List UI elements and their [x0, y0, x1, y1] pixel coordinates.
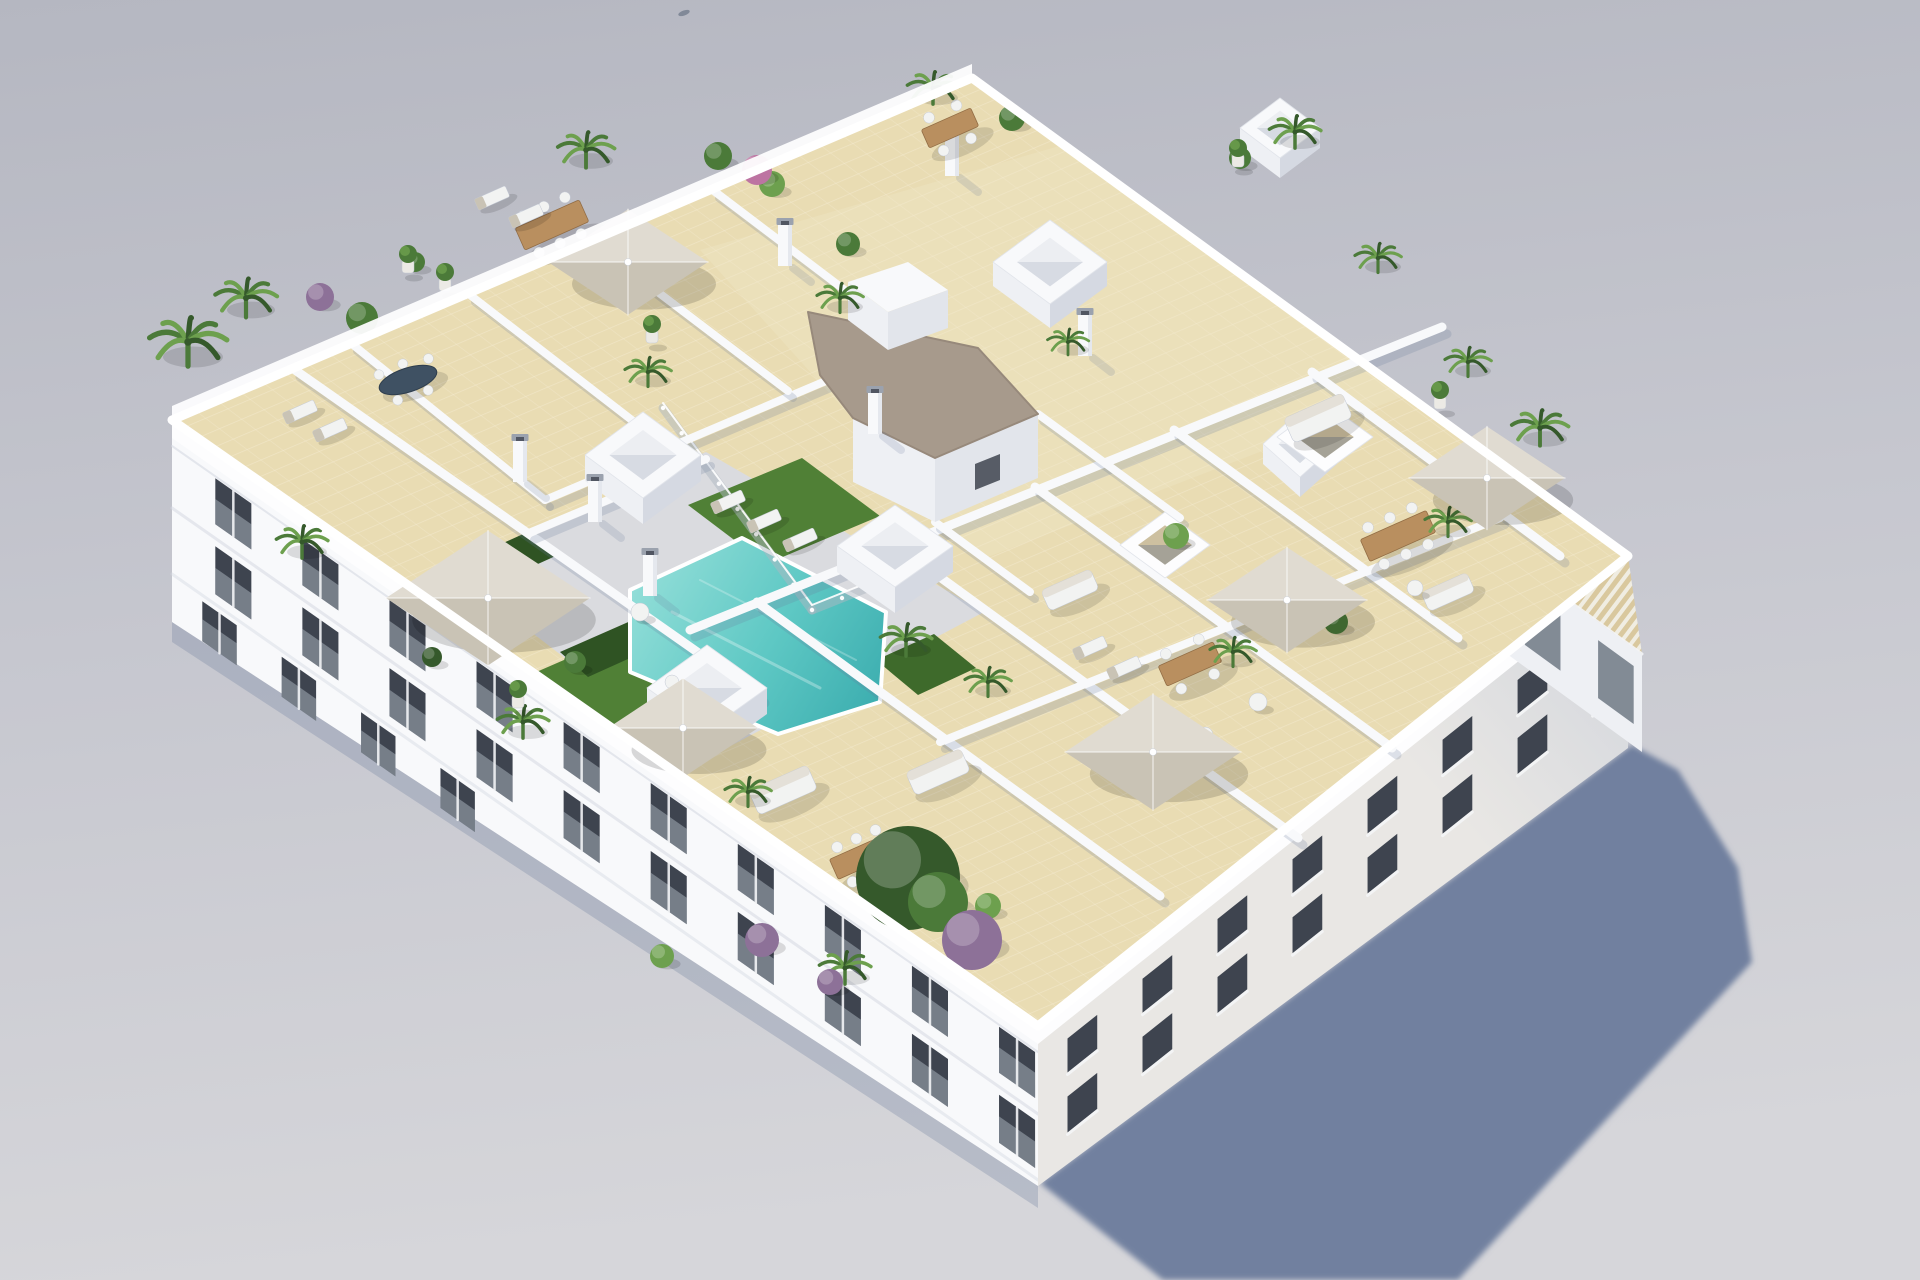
palm-crown	[838, 296, 843, 301]
fence-post	[840, 596, 844, 600]
chimney-vent	[1081, 311, 1089, 315]
fence-post	[679, 431, 683, 435]
chimney-vent	[871, 389, 879, 393]
parasol-pole	[1150, 749, 1157, 756]
fence-post	[773, 557, 777, 561]
pot-foliage-highlight	[510, 681, 520, 691]
chimney-shaft-shade	[523, 438, 527, 482]
palm-crown	[521, 720, 526, 725]
parasol-pole	[1484, 475, 1491, 482]
parasol-pole	[625, 259, 632, 266]
palm-crown	[1537, 425, 1543, 431]
chimney-shaft-shade	[598, 478, 602, 522]
chimney-shaft-shade	[788, 222, 792, 266]
palm-crown	[1293, 130, 1298, 135]
palm-crown	[646, 370, 651, 375]
palm-crown	[243, 295, 249, 301]
bush-highlight	[947, 913, 980, 946]
bush-highlight	[864, 831, 921, 888]
palm-crown	[1376, 256, 1381, 261]
palm-crown	[1466, 360, 1471, 365]
item-shadow	[405, 275, 423, 282]
palm-crown	[1066, 340, 1070, 344]
fence-post	[810, 608, 814, 612]
chimney-shaft-shade	[653, 552, 657, 596]
palm-crown	[843, 966, 848, 971]
bush-highlight	[1165, 524, 1179, 538]
pot-foliage-highlight	[1230, 140, 1240, 150]
bush-highlight	[652, 945, 665, 958]
bush-highlight	[308, 284, 323, 299]
chimney-vent	[591, 477, 599, 481]
bush-highlight	[706, 143, 721, 158]
palm-crown	[746, 790, 751, 795]
item-shadow	[649, 345, 667, 352]
round-table-top	[1407, 580, 1423, 596]
chimney-shaft-shade	[878, 390, 882, 434]
chimney-vent	[516, 437, 524, 441]
round-table-top	[1249, 693, 1267, 711]
palm-crown	[583, 147, 589, 153]
round-table-top	[631, 603, 649, 621]
palm-crown	[1446, 520, 1451, 525]
fence-post	[661, 406, 665, 410]
bush-highlight	[819, 970, 833, 984]
palm-crown	[1231, 650, 1236, 655]
bush-highlight	[424, 648, 435, 659]
item-shadow	[1235, 169, 1253, 176]
palm-crown	[986, 680, 991, 685]
palm-crown	[904, 638, 909, 643]
parasol-pole	[1284, 597, 1291, 604]
parasol-pole	[485, 595, 492, 602]
bush-highlight	[838, 233, 851, 246]
pot-foliage-highlight	[400, 246, 410, 256]
pot-foliage-highlight	[644, 316, 654, 326]
bush-highlight	[748, 925, 767, 944]
palm-crown	[184, 338, 192, 346]
architectural-render	[0, 0, 1920, 1280]
bush-highlight	[348, 304, 366, 322]
bush-highlight	[977, 894, 991, 908]
bush-highlight	[566, 652, 578, 664]
chimney-vent	[781, 221, 789, 225]
fence-post	[717, 482, 721, 486]
item-shadow	[515, 710, 533, 717]
parasol-pole	[680, 725, 687, 732]
pot-foliage-highlight	[1432, 382, 1442, 392]
pot-foliage-highlight	[437, 264, 447, 274]
palm-crown	[300, 540, 305, 545]
bush-highlight	[913, 875, 946, 908]
chimney-vent	[646, 551, 654, 555]
